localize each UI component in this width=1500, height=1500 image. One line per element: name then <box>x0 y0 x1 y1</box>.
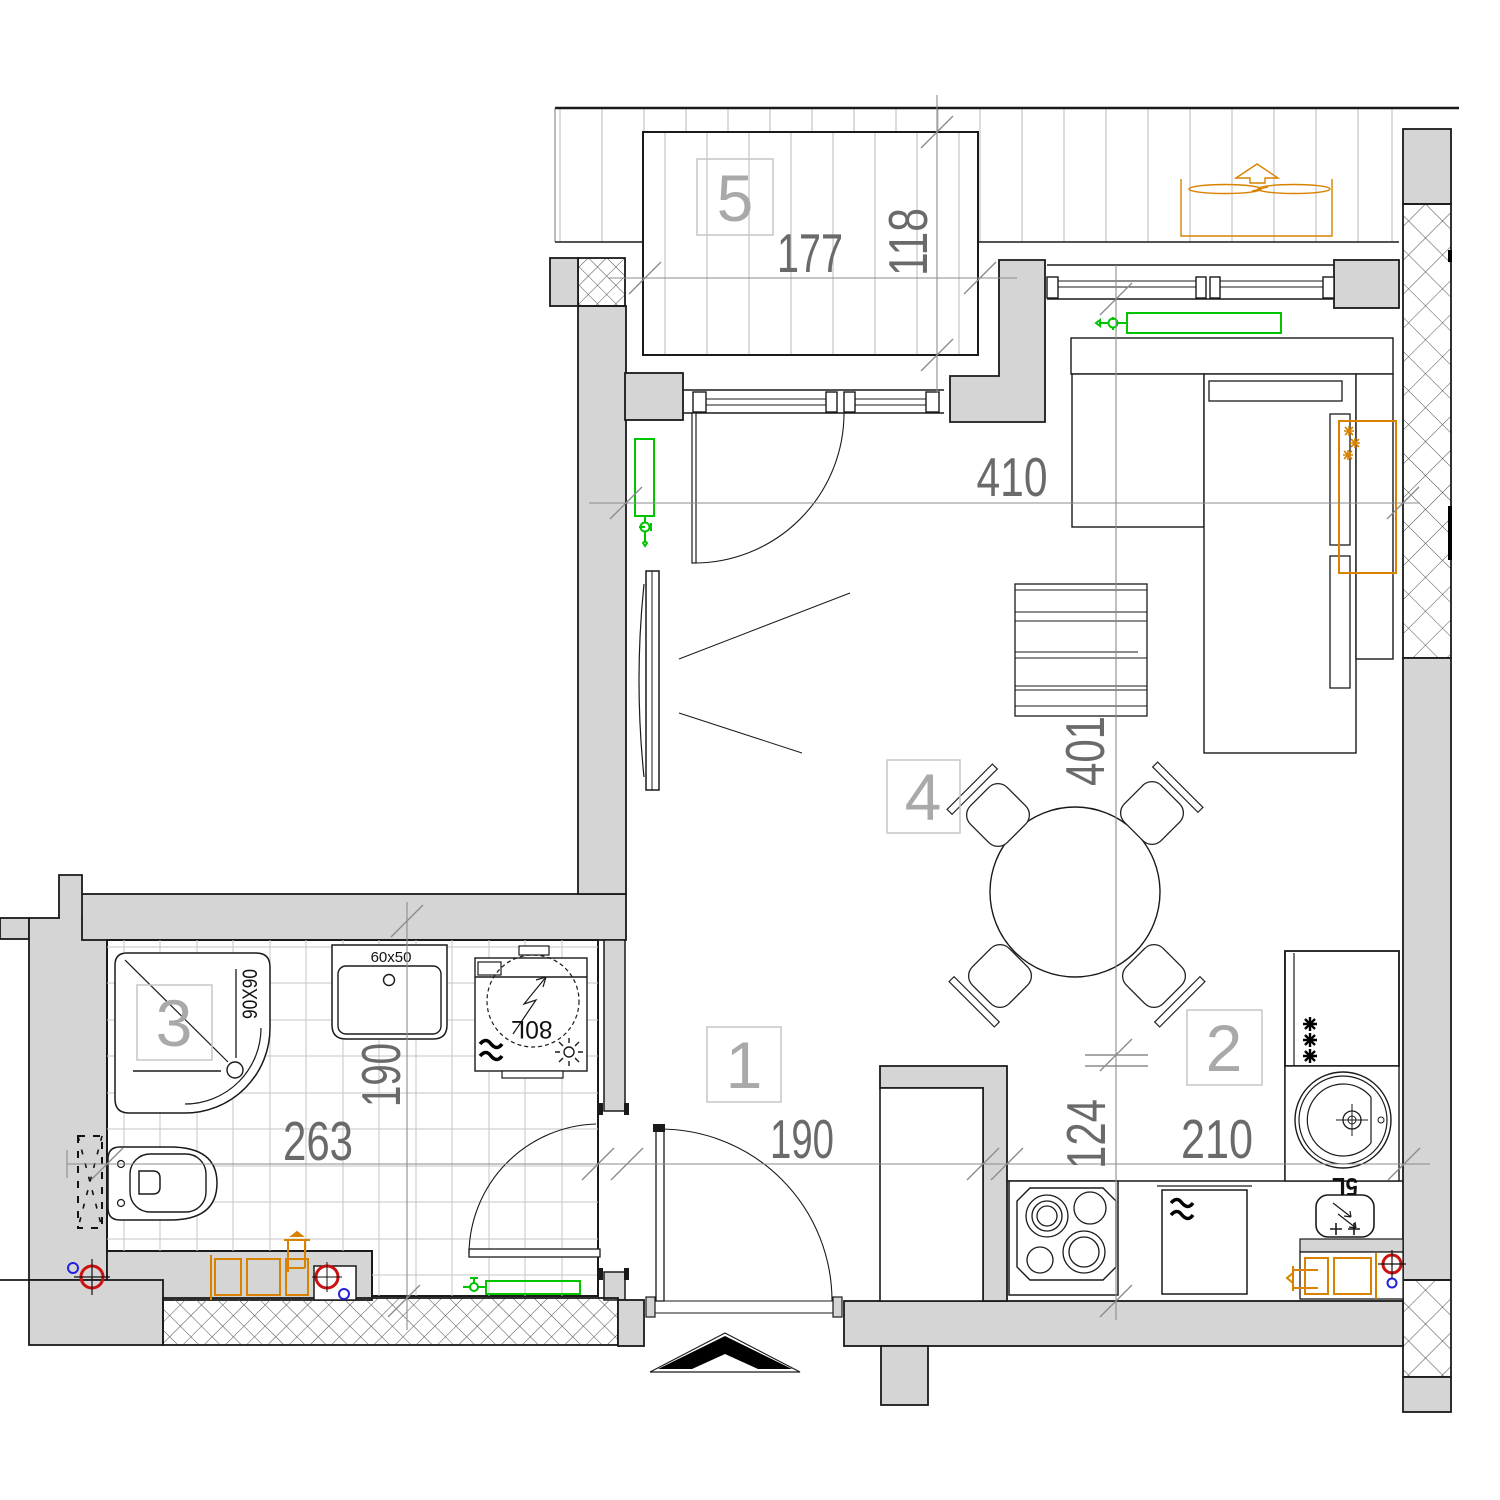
svg-text:118: 118 <box>877 208 939 276</box>
svg-text:177: 177 <box>777 222 843 284</box>
svg-text:210: 210 <box>1181 1108 1253 1170</box>
svg-text:410: 410 <box>977 446 1048 508</box>
svg-text:401: 401 <box>1054 716 1116 786</box>
svg-text:190: 190 <box>770 1108 834 1170</box>
svg-text:5L: 5L <box>1332 1172 1358 1200</box>
svg-text:4: 4 <box>905 760 942 834</box>
svg-text:1: 1 <box>726 1028 763 1102</box>
svg-text:124: 124 <box>1055 1099 1117 1169</box>
svg-text:2: 2 <box>1206 1011 1243 1085</box>
svg-text:80L: 80L <box>511 1015 552 1043</box>
svg-text:5: 5 <box>717 161 754 235</box>
svg-text:3: 3 <box>156 986 193 1060</box>
svg-text:90X90: 90X90 <box>239 969 262 1019</box>
svg-text:263: 263 <box>283 1110 353 1172</box>
svg-text:190: 190 <box>350 1043 412 1107</box>
svg-text:60x50: 60x50 <box>371 949 412 966</box>
